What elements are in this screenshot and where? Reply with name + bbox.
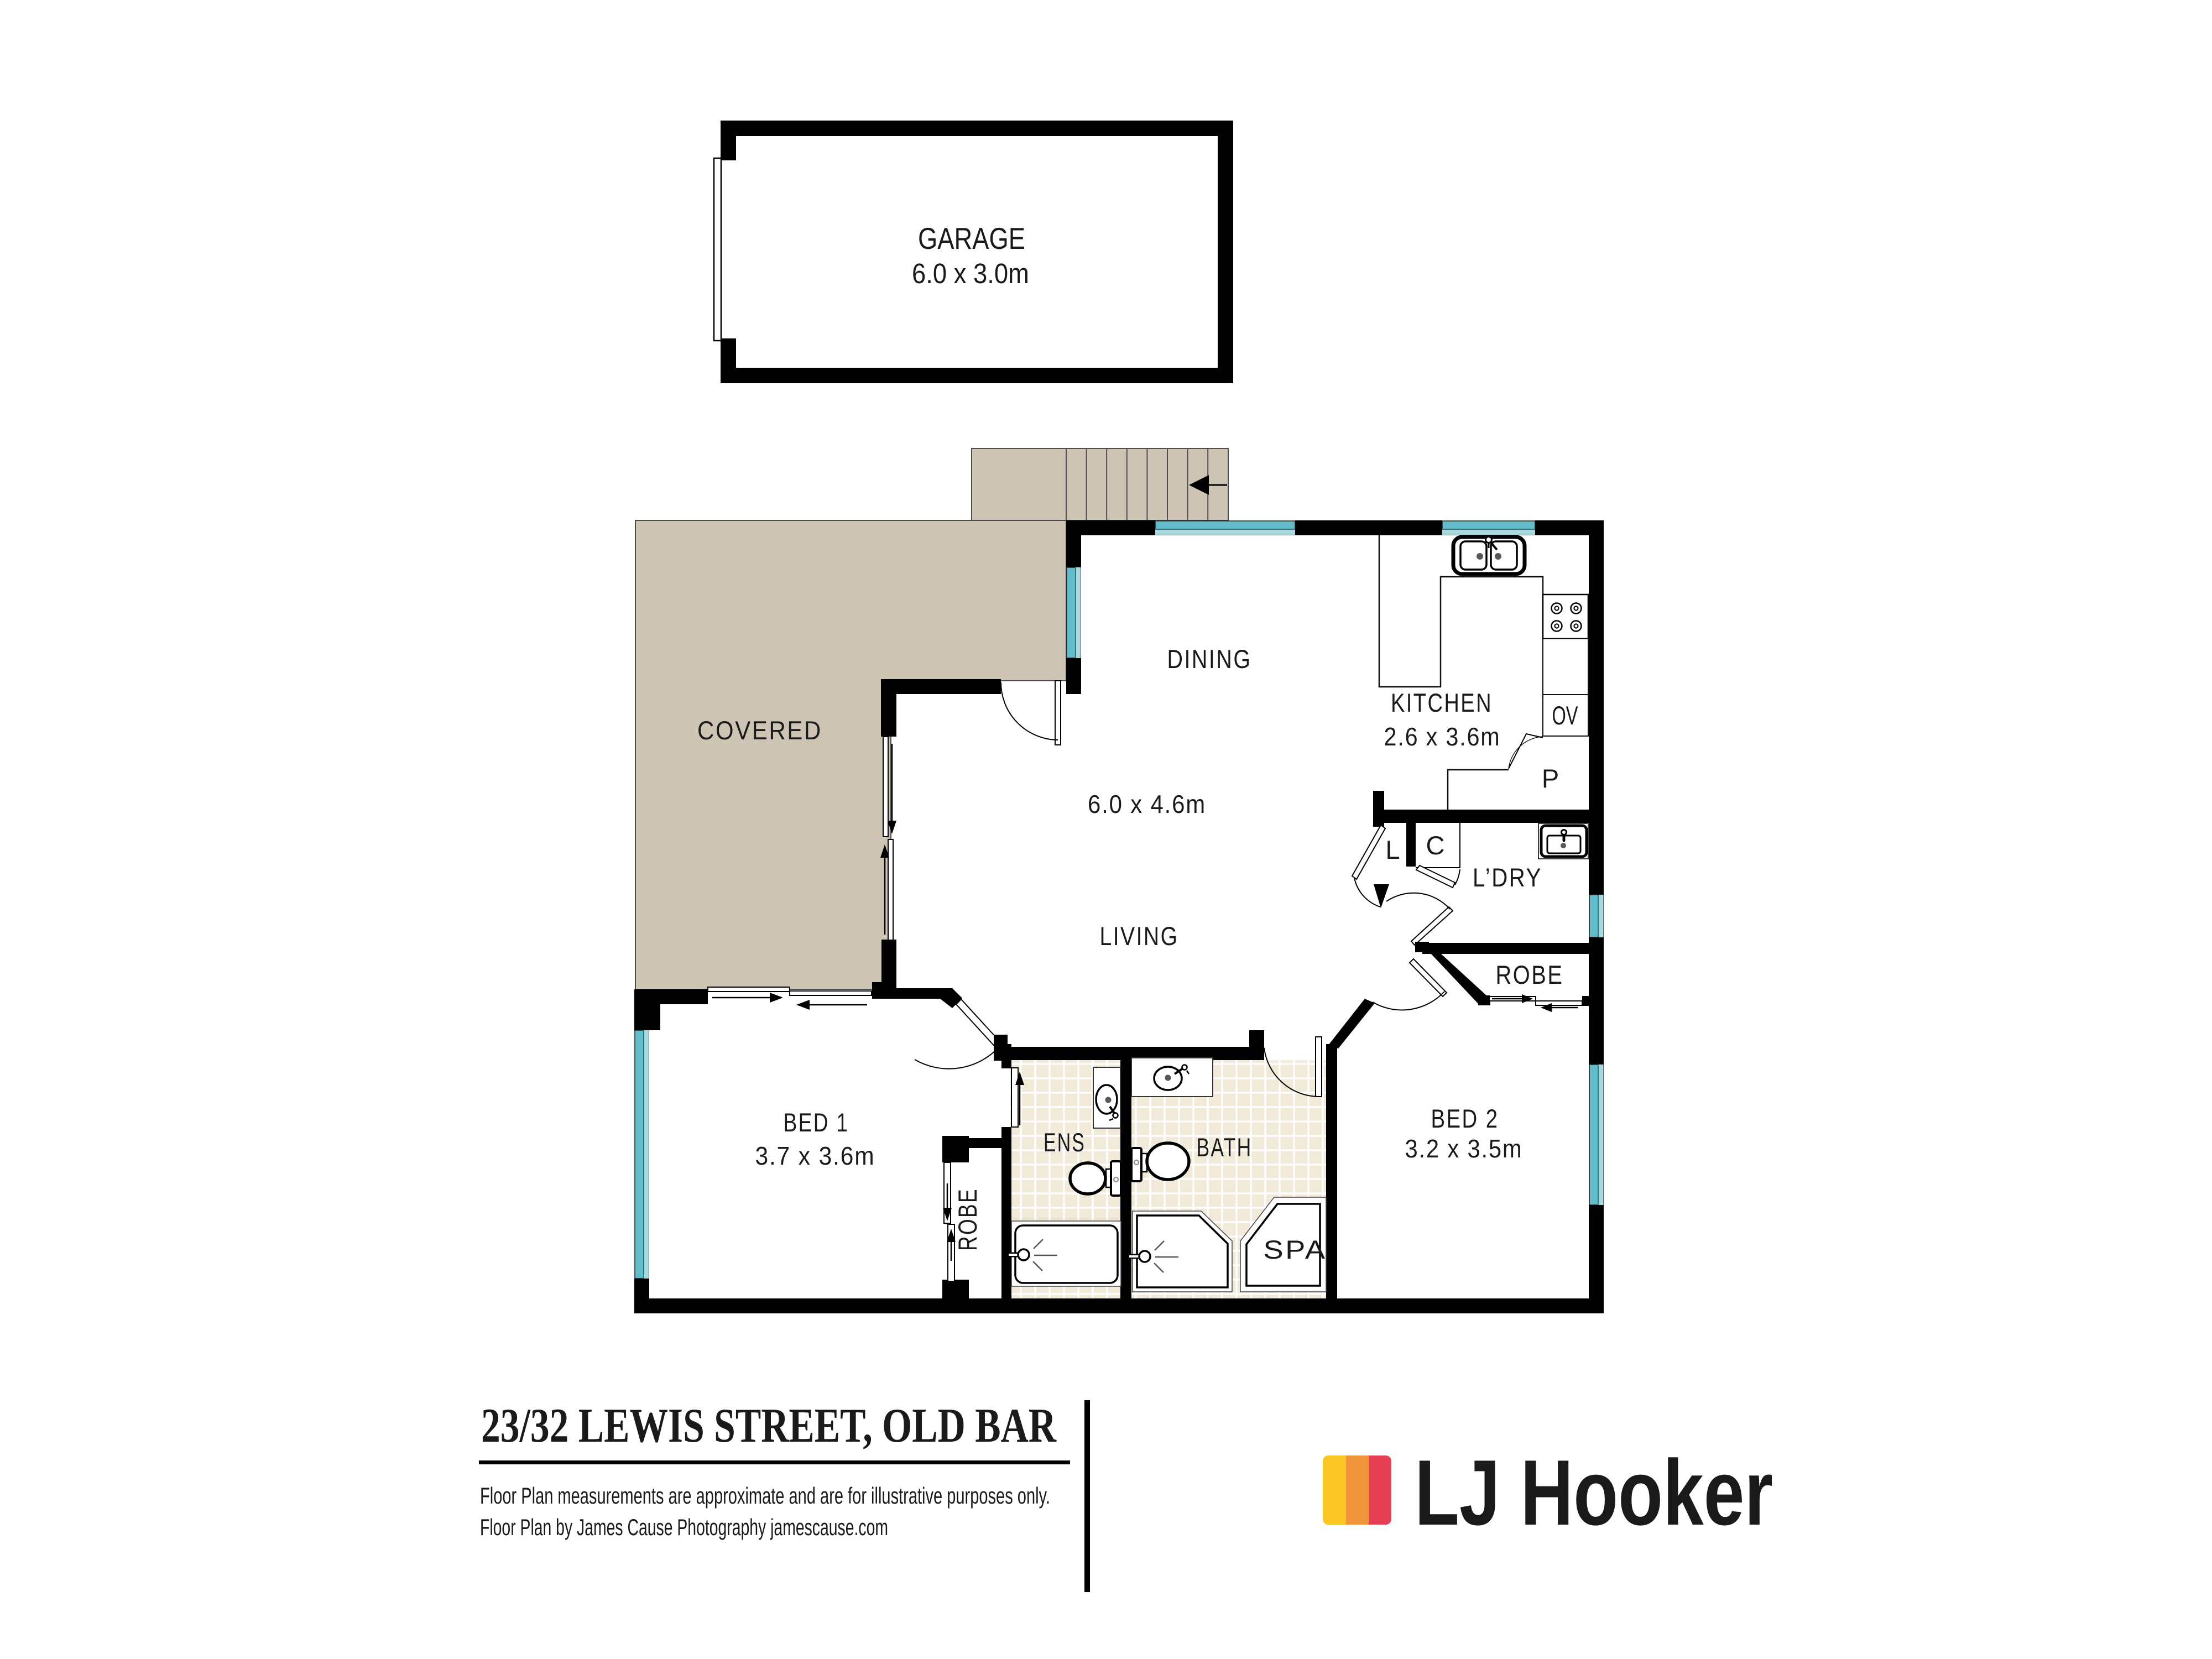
svg-text:2.6 x 3.6m: 2.6 x 3.6m	[1384, 722, 1501, 751]
svg-text:L’DRY: L’DRY	[1473, 863, 1542, 892]
svg-text:OV: OV	[1552, 701, 1578, 730]
svg-text:LIVING: LIVING	[1100, 921, 1179, 951]
svg-text:LJ Hooker: LJ Hooker	[1415, 1441, 1773, 1545]
svg-text:Floor Plan by James Cause Phot: Floor Plan by James Cause Photography ja…	[480, 1514, 888, 1540]
svg-text:GARAGE: GARAGE	[918, 221, 1025, 255]
svg-text:P: P	[1542, 764, 1561, 793]
svg-text:SPA: SPA	[1264, 1235, 1327, 1264]
svg-text:ROBE: ROBE	[953, 1188, 982, 1251]
svg-text:3.2 x 3.5m: 3.2 x 3.5m	[1405, 1134, 1523, 1163]
svg-text:BED 1: BED 1	[784, 1108, 849, 1137]
svg-text:KITCHEN: KITCHEN	[1391, 688, 1493, 717]
svg-text:BED 2: BED 2	[1431, 1104, 1499, 1133]
svg-text:ENS: ENS	[1044, 1128, 1086, 1157]
svg-text:BATH: BATH	[1197, 1133, 1253, 1162]
svg-text:DINING: DINING	[1167, 644, 1252, 674]
svg-text:23/32 LEWIS STREET, OLD BAR: 23/32 LEWIS STREET, OLD BAR	[481, 1399, 1057, 1453]
svg-text:6.0 x 4.6m: 6.0 x 4.6m	[1088, 790, 1206, 818]
svg-text:L: L	[1385, 835, 1401, 864]
svg-text:3.7 x 3.6m: 3.7 x 3.6m	[755, 1141, 875, 1170]
svg-text:COVERED: COVERED	[697, 716, 822, 745]
svg-text:C: C	[1426, 831, 1447, 860]
svg-text:Floor Plan measurements are ap: Floor Plan measurements are approximate …	[480, 1483, 1050, 1509]
svg-text:6.0 x 3.0m: 6.0 x 3.0m	[912, 258, 1029, 289]
svg-text:ROBE: ROBE	[1496, 960, 1564, 989]
